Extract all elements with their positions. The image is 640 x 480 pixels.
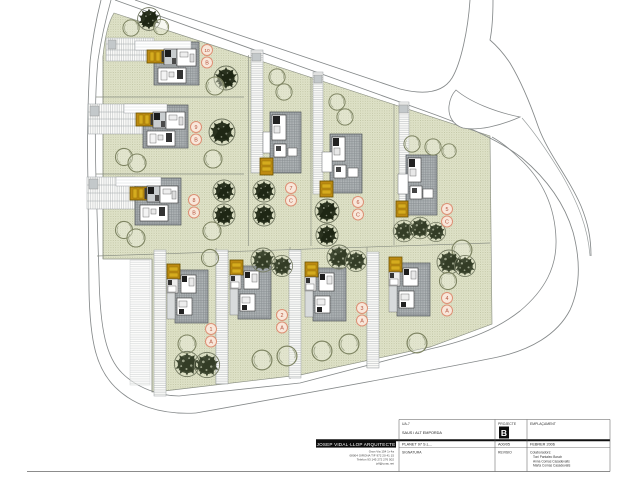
svg-text:UA-7: UA-7 — [402, 422, 410, 426]
svg-text:5: 5 — [446, 207, 449, 213]
svg-text:4: 4 — [446, 296, 449, 302]
svg-text:6: 6 — [357, 200, 360, 206]
svg-text:A00/05: A00/05 — [498, 442, 510, 446]
svg-text:8: 8 — [193, 198, 196, 204]
svg-text:Marta Comas Casadevalls: Marta Comas Casadevalls — [533, 464, 571, 468]
svg-text:A: A — [209, 340, 213, 346]
svg-text:PLANET 97 S.L...: PLANET 97 S.L... — [402, 442, 432, 446]
svg-text:SIGNATURA: SIGNATURA — [402, 451, 422, 455]
svg-text:FEBRER 2006: FEBRER 2006 — [530, 442, 555, 446]
svg-text:B: B — [501, 428, 507, 438]
svg-text:C: C — [445, 220, 449, 226]
svg-text:9: 9 — [195, 125, 198, 131]
svg-text:10: 10 — [204, 48, 210, 54]
svg-text:JOSEP VIDAL·LLOP ARQUITECTE: JOSEP VIDAL·LLOP ARQUITECTE — [317, 442, 396, 447]
svg-text:7: 7 — [290, 186, 293, 192]
svg-text:EMPLAÇAMENT: EMPLAÇAMENT — [530, 422, 556, 426]
svg-text:B: B — [194, 138, 198, 144]
svg-text:B: B — [192, 211, 196, 217]
svg-text:REVISIO: REVISIO — [498, 451, 512, 455]
svg-text:B: B — [205, 61, 209, 67]
svg-text:Colaboradors:: Colaboradors: — [530, 451, 551, 455]
svg-text:2: 2 — [281, 313, 284, 319]
svg-text:3: 3 — [361, 306, 364, 312]
svg-text:A: A — [280, 326, 284, 332]
svg-text:SAUS i ALT EMPORDA: SAUS i ALT EMPORDA — [402, 431, 442, 435]
svg-text:PROJECTE: PROJECTE — [498, 422, 517, 426]
svg-text:A: A — [360, 319, 364, 325]
svg-text:A: A — [445, 309, 449, 315]
svg-text:C: C — [289, 199, 293, 205]
svg-text:jvll@coac.net: jvll@coac.net — [375, 462, 394, 466]
svg-text:1: 1 — [210, 327, 213, 333]
svg-text:C: C — [356, 213, 360, 219]
